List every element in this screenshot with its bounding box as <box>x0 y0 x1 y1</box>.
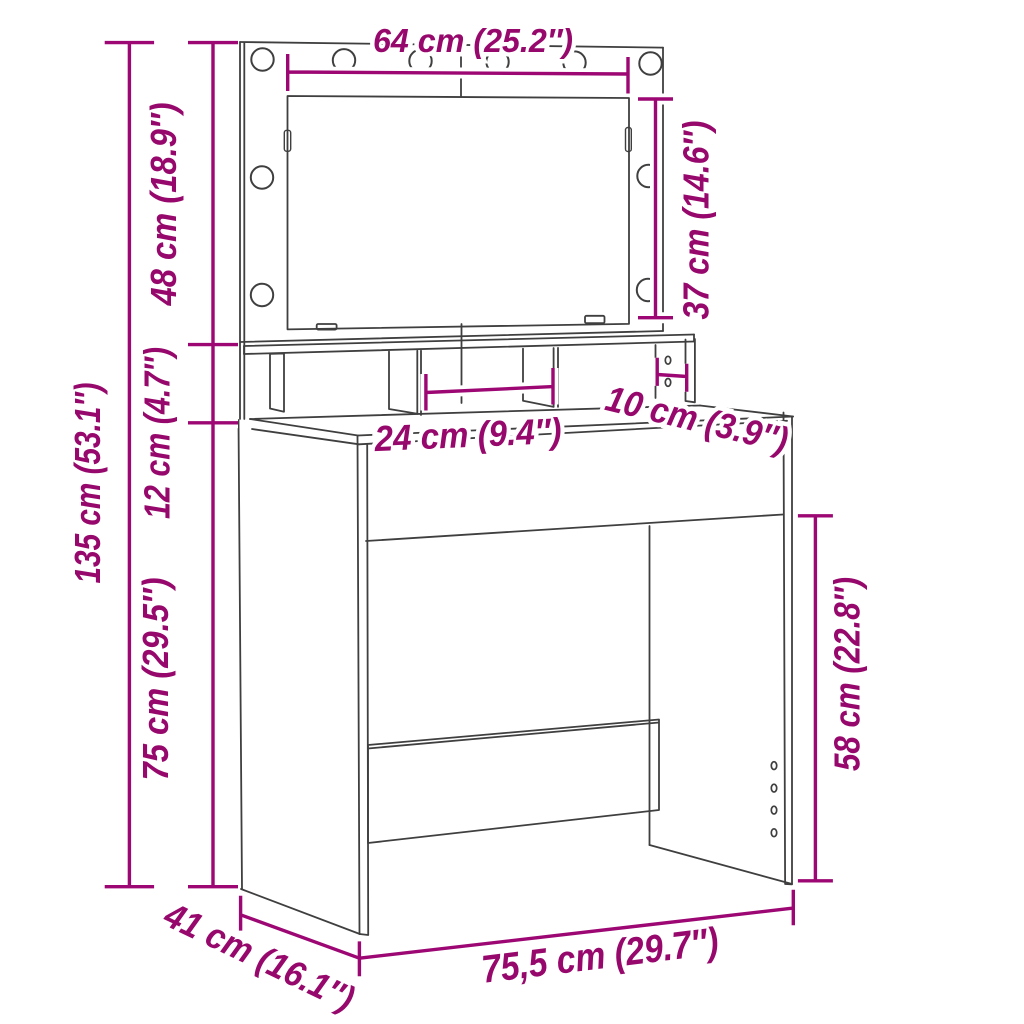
svg-text:135 cm (53.1″): 135 cm (53.1″) <box>67 383 108 584</box>
svg-text:37 cm (14.6″): 37 cm (14.6″) <box>676 121 717 320</box>
svg-text:75 cm (29.5″): 75 cm (29.5″) <box>135 578 176 781</box>
svg-text:24 cm (9.4″): 24 cm (9.4″) <box>373 410 563 459</box>
svg-text:64 cm (25.2″): 64 cm (25.2″) <box>373 22 573 59</box>
svg-text:48 cm (18.9″): 48 cm (18.9″) <box>143 103 184 307</box>
svg-text:58 cm (22.8″): 58 cm (22.8″) <box>827 577 868 771</box>
svg-text:12 cm (4.7″): 12 cm (4.7″) <box>137 347 178 519</box>
